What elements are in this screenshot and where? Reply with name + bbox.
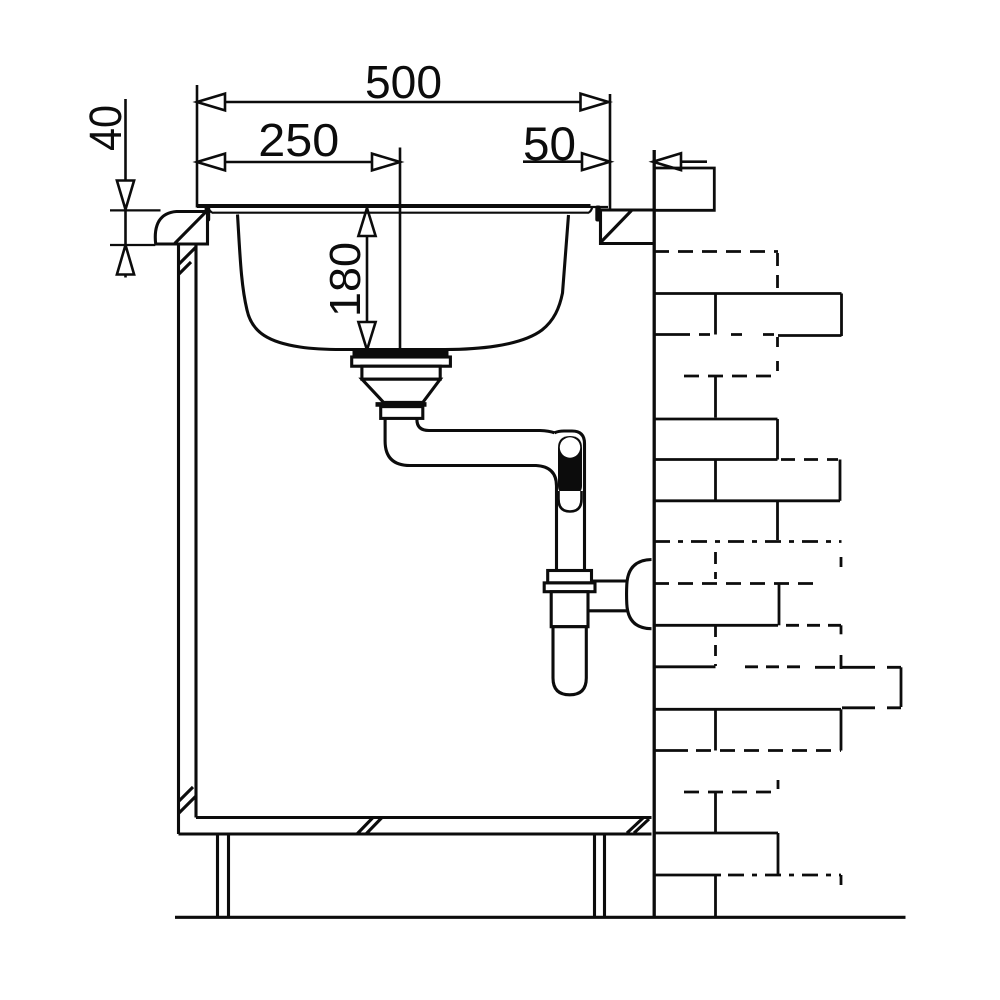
svg-text:180: 180 bbox=[321, 242, 370, 317]
svg-text:500: 500 bbox=[365, 56, 442, 108]
svg-text:40: 40 bbox=[80, 105, 131, 151]
svg-text:250: 250 bbox=[258, 114, 339, 166]
